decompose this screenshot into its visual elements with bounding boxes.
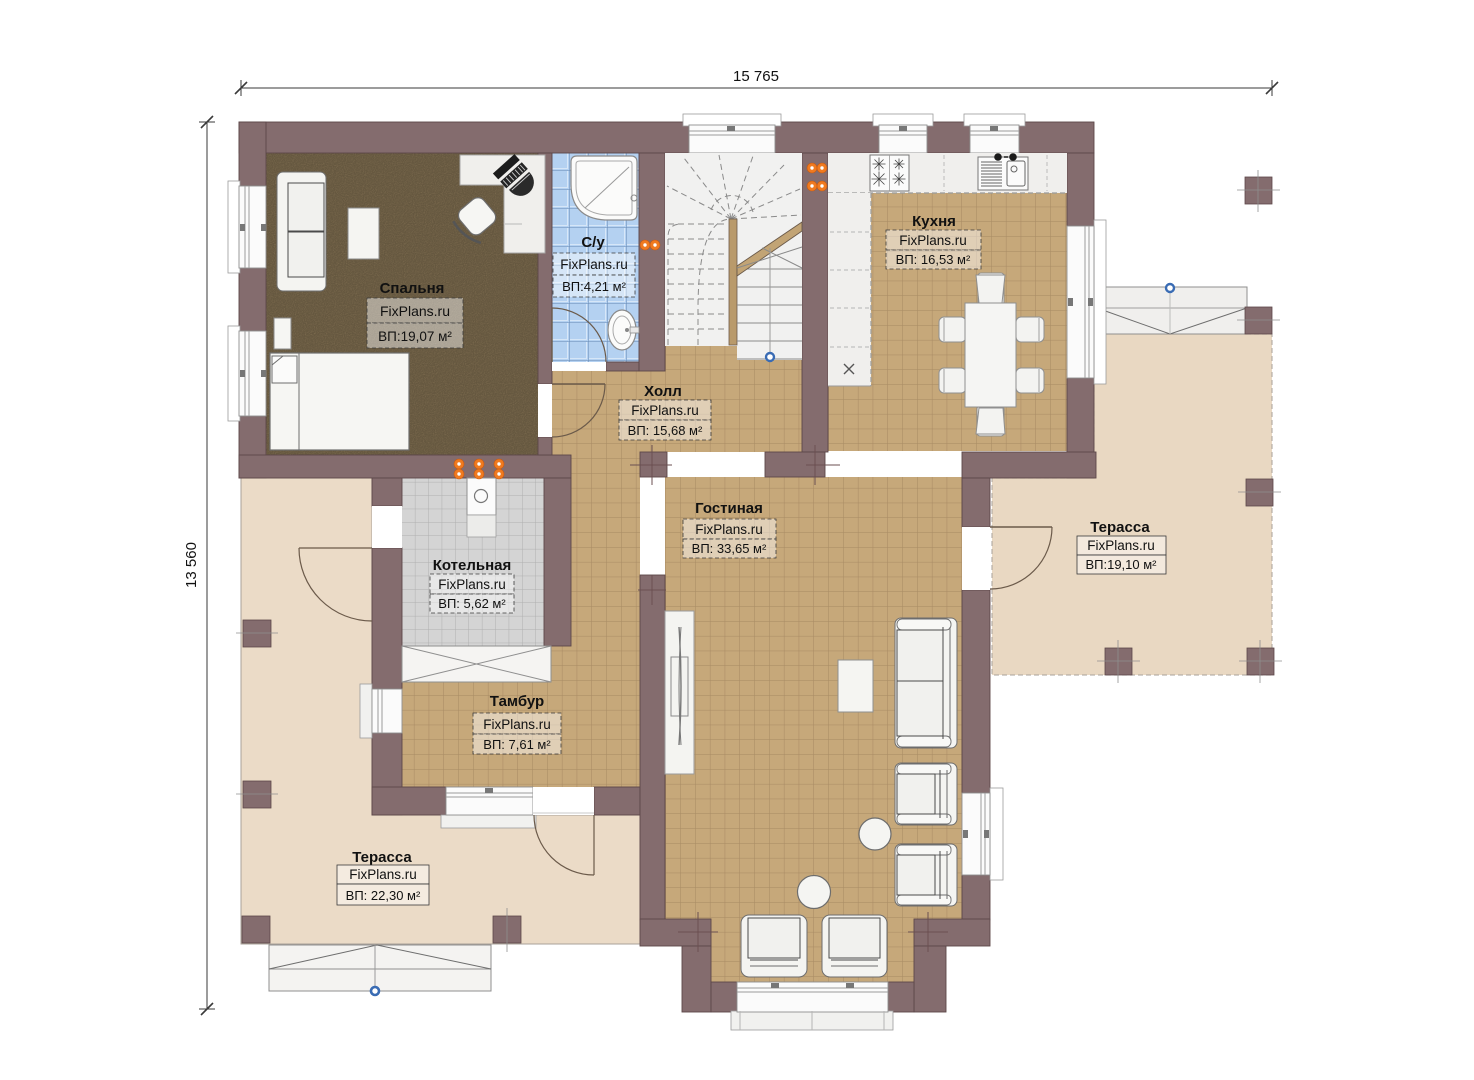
svg-text:15 765: 15 765 <box>733 68 779 85</box>
svg-text:FixPlans.ru: FixPlans.ru <box>899 233 967 248</box>
svg-text:FixPlans.ru: FixPlans.ru <box>438 577 506 592</box>
svg-text:FixPlans.ru: FixPlans.ru <box>380 303 450 319</box>
svg-text:ВП:19,07 м²: ВП:19,07 м² <box>378 329 452 344</box>
svg-text:ВП: 33,65 м²: ВП: 33,65 м² <box>692 541 767 556</box>
svg-text:Кухня: Кухня <box>912 213 956 230</box>
svg-text:ВП: 15,68 м²: ВП: 15,68 м² <box>628 423 703 438</box>
svg-text:ВП: 7,61 м²: ВП: 7,61 м² <box>483 737 551 752</box>
svg-text:FixPlans.ru: FixPlans.ru <box>1087 538 1155 553</box>
svg-text:FixPlans.ru: FixPlans.ru <box>631 403 699 418</box>
svg-text:FixPlans.ru: FixPlans.ru <box>560 257 628 272</box>
svg-text:Терасса: Терасса <box>1090 519 1150 536</box>
svg-text:ВП:4,21 м²: ВП:4,21 м² <box>562 279 626 294</box>
svg-text:FixPlans.ru: FixPlans.ru <box>483 717 551 732</box>
svg-text:ВП: 5,62 м²: ВП: 5,62 м² <box>438 596 506 611</box>
svg-text:Гостиная: Гостиная <box>695 500 763 517</box>
svg-text:13 560: 13 560 <box>183 542 200 588</box>
svg-text:ВП:19,10 м²: ВП:19,10 м² <box>1085 557 1157 572</box>
svg-text:FixPlans.ru: FixPlans.ru <box>695 522 763 537</box>
svg-text:Терасса: Терасса <box>352 849 412 866</box>
svg-text:Спальня: Спальня <box>380 280 445 297</box>
svg-text:С/у: С/у <box>581 234 605 251</box>
svg-text:ВП: 22,30 м²: ВП: 22,30 м² <box>346 888 421 903</box>
svg-text:Тамбур: Тамбур <box>490 693 544 710</box>
svg-text:Котельная: Котельная <box>433 557 512 574</box>
svg-text:FixPlans.ru: FixPlans.ru <box>349 867 417 882</box>
svg-text:Холл: Холл <box>644 383 682 400</box>
svg-text:ВП: 16,53 м²: ВП: 16,53 м² <box>896 252 971 267</box>
